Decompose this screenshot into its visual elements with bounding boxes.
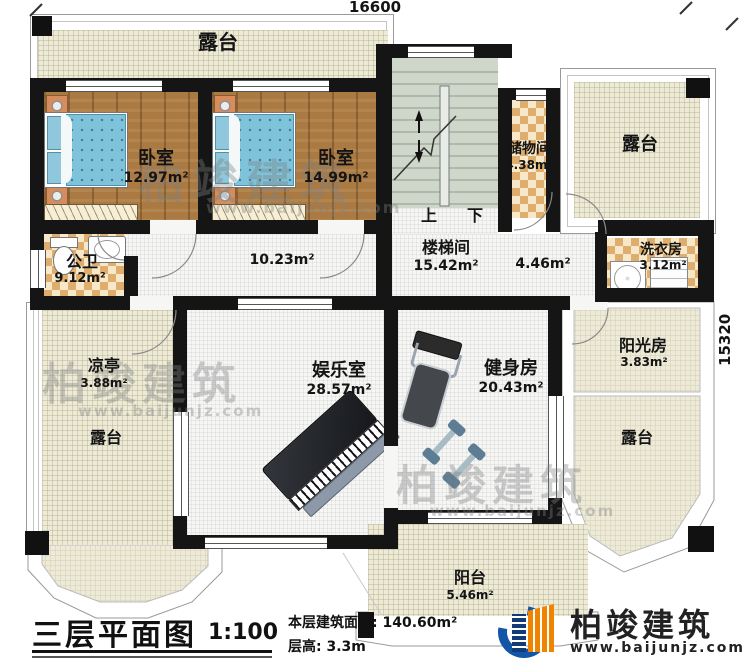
room-label-sunroom: 阳光房	[619, 338, 667, 355]
room-area-bathroom: 9.12m²	[54, 272, 105, 286]
drawing-scale: 1:100	[208, 620, 278, 645]
floor-height-label: 层高:	[288, 639, 322, 655]
floor-area-line: 本层建筑面积: 140.60m²	[288, 612, 457, 632]
room-area-bedroom-2: 14.99m²	[303, 171, 368, 186]
logo-building-dark	[512, 614, 526, 652]
room-area-entertainment: 28.57m²	[306, 383, 371, 398]
logo-website: www.baijunjz.com	[570, 640, 745, 656]
room-label-bathroom: 公卫	[66, 254, 98, 271]
dimension-right: 15320	[718, 314, 734, 366]
stairs-up-label: 上	[421, 208, 437, 225]
stair-direction-arrows	[415, 110, 423, 163]
stairs-down-label: 下	[467, 208, 483, 225]
room-area-sunroom: 3.83m²	[620, 356, 667, 369]
room-label-terrace-top: 露台	[198, 32, 238, 53]
room-label-entertainment: 娱乐室	[312, 362, 366, 381]
room-label-bedroom-1: 卧室	[138, 150, 174, 169]
room-label-gym: 健身房	[484, 360, 538, 379]
room-label-stairwell: 楼梯间	[422, 240, 470, 257]
title-underline	[32, 650, 272, 653]
title-underline	[32, 656, 272, 658]
room-area-balcony: 5.46m²	[446, 589, 493, 602]
dimension-top: 16600	[349, 0, 401, 16]
company-logo	[498, 596, 564, 666]
door-arcs	[98, 192, 608, 354]
logo-building-orange	[528, 604, 554, 652]
hallway-area: 10.23m²	[249, 253, 314, 268]
room-area-storage: 4.38m²	[505, 159, 552, 172]
floor-height-value: 3.3m	[326, 639, 365, 655]
stair-divider	[440, 86, 449, 206]
hall-east-area: 4.46m²	[515, 257, 570, 272]
room-label-bedroom-2: 卧室	[318, 150, 354, 169]
floor-height-line: 层高: 3.3m	[288, 636, 366, 656]
room-label-balcony: 阳台	[454, 570, 486, 587]
room-area-gym: 20.43m²	[478, 381, 543, 396]
room-label-storage: 储物间	[508, 142, 550, 157]
eave-line	[343, 553, 381, 614]
room-label-terrace-left: 露台	[90, 430, 122, 447]
room-area-laundry: 3.12m²	[639, 259, 686, 272]
room-label-terrace-top-right: 露台	[622, 136, 658, 155]
room-area-bedroom-1: 12.97m²	[123, 171, 188, 186]
drawing-title: 三层平面图	[32, 610, 197, 654]
room-area-stairwell: 15.42m²	[413, 259, 478, 274]
room-label-terrace-right: 露台	[621, 430, 653, 447]
floor-area-label: 本层建筑面积:	[288, 615, 378, 631]
room-label-laundry: 洗衣房	[640, 243, 682, 258]
floor-plan: 柏竣建筑 www.baijunjz.com 柏竣建筑 www.baijunjz.…	[0, 0, 750, 672]
room-label-pavilion: 凉亭	[88, 358, 120, 375]
floor-area-value: 140.60m²	[382, 615, 457, 631]
room-area-pavilion: 3.88m²	[80, 377, 127, 390]
